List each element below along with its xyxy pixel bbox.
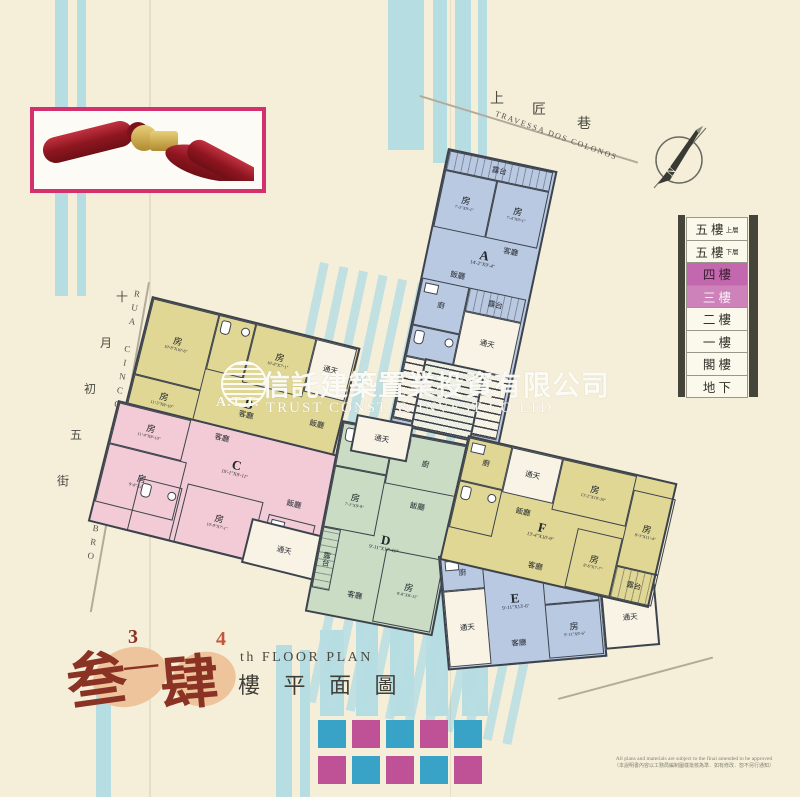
square-magenta (454, 756, 482, 784)
street-left-char: 五 (70, 426, 82, 443)
watermark-company-zh: 信託建築置業投資有限公司 (262, 364, 610, 404)
title-sup-4: 4 (216, 628, 226, 651)
square-magenta (352, 720, 380, 748)
room: 房8'-8"X8'-11" (372, 549, 444, 633)
legend-row-ground: 地 下 (686, 376, 748, 399)
street-top-name: TRAVESSA DOS COLONOS (494, 109, 619, 162)
street-left-char: 初 (84, 380, 96, 397)
square-magenta (318, 756, 346, 784)
street-top-char: 匠 (532, 99, 546, 119)
square-magenta (386, 756, 414, 784)
stripe (433, 0, 447, 163)
square-teal (352, 756, 380, 784)
street-left-char: 街 (57, 472, 69, 489)
stripe (388, 0, 424, 150)
title-dash: — (122, 644, 160, 685)
unit-label: E9'-11"X13'-6" (484, 575, 546, 628)
square-teal (454, 720, 482, 748)
room: 房9'-11"X9'-6" (545, 600, 604, 659)
footnote: All plans and materials are subject to t… (604, 755, 784, 771)
footnote-en: All plans and materials are subject to t… (604, 755, 784, 763)
square-teal (420, 756, 448, 784)
street-left-char: 月 (100, 334, 112, 351)
door-handle-photo (30, 107, 266, 193)
legend-row-5f-upper: 五 樓上層 (686, 217, 748, 241)
title-floor-plan-zh: 樓 平 面 圖 (238, 668, 406, 700)
title-floor-plan-en: th FLOOR PLAN (240, 650, 373, 666)
title-number-4-zh: 肆 (156, 634, 221, 723)
square-teal (386, 720, 414, 748)
brochure-page: 上 匠 巷 TRAVESSA DOS COLONOS 十 月 初 五 街 RUA… (0, 0, 800, 797)
footnote-zh: （本說明書內容以工務局編制圖樣批核為準．如有修改．恕不另行通知） (604, 763, 784, 771)
door-handle-illustration (34, 111, 254, 181)
bathroom (449, 480, 503, 537)
street-top-char: 巷 (577, 113, 591, 133)
compass: N (646, 124, 712, 192)
watermark-company-en: TRUST CONST. & INVEST CO.LTD. (266, 400, 559, 417)
legend-row-4f-highlighted: 四 樓 (686, 263, 748, 286)
lightwell: 通天 (443, 588, 491, 667)
legend-row-5f-lower: 五 樓下層 (686, 241, 748, 264)
title-number-3-zh: 叁 (60, 628, 132, 723)
att-logo-text: A.T.T. (216, 395, 259, 411)
square-teal (318, 720, 346, 748)
living-room: 客廳 (488, 623, 549, 664)
legend-row-mezzanine: 閣 樓 (686, 353, 748, 376)
street-left-char: 十 (116, 288, 128, 305)
legend-row-3f-highlighted: 三 樓 (686, 286, 748, 309)
floor-legend: 五 樓上層 五 樓下層 四 樓 三 樓 二 樓 一 樓 閣 樓 地 下 (678, 215, 758, 397)
decorative-squares (318, 720, 482, 784)
street-top-char: 上 (490, 88, 504, 108)
legend-row-1f: 一 樓 (686, 331, 748, 354)
square-magenta (420, 720, 448, 748)
street-line-bottom (558, 657, 713, 700)
room: 房7'-4"X9'-1" (485, 181, 549, 249)
legend-side-bar (678, 215, 685, 397)
legend-row-2f: 二 樓 (686, 308, 748, 331)
legend-side-bar (749, 215, 758, 397)
